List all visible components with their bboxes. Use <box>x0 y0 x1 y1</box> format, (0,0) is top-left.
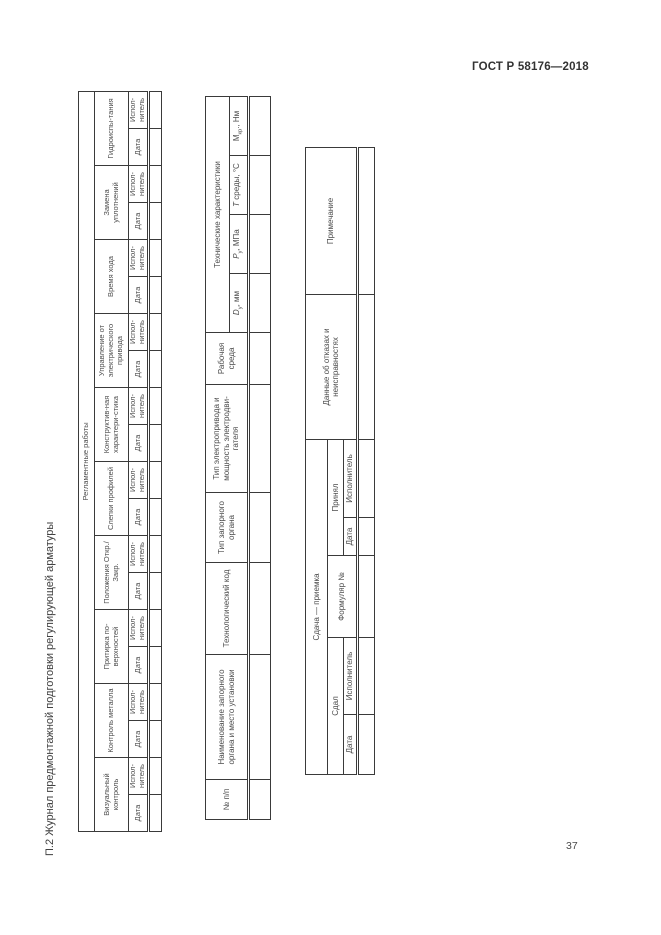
col-header-torque: Мкр., Нм <box>230 97 249 156</box>
executor-header: Испол-нитель <box>129 240 149 277</box>
page-number: 37 <box>566 840 578 852</box>
col-header-dn: Dу, мм <box>230 274 249 333</box>
executor-header: Испол-нитель <box>129 314 149 351</box>
empty-cell <box>149 277 162 314</box>
group-handed-over: Сдал <box>328 638 344 775</box>
table-row <box>249 97 271 820</box>
empty-cell <box>249 274 271 333</box>
date-header: Дата <box>129 721 149 758</box>
table-row <box>149 91 162 831</box>
regulated-works-table: Регламентные работы Визуальный контроль … <box>78 91 162 832</box>
empty-cell <box>149 203 162 240</box>
empty-cell <box>149 388 162 425</box>
empty-cell <box>249 215 271 274</box>
col-header-valve-name: Наименование запорного органа и место ус… <box>206 655 249 780</box>
date-header: Дата <box>129 425 149 462</box>
col-header-pn: Pу, МПа <box>230 215 249 274</box>
empty-cell <box>149 166 162 203</box>
date-header: Дата <box>129 277 149 314</box>
executor-header: Испол-нитель <box>129 166 149 203</box>
empty-cell <box>249 563 271 655</box>
empty-cell <box>149 684 162 721</box>
group-open-close-positions: Положения Откр./Закр. <box>95 536 129 610</box>
empty-cell <box>249 780 271 820</box>
empty-cell <box>149 499 162 536</box>
table-title-acceptance: Сдача — приемка <box>306 439 328 774</box>
date-header: Дата <box>129 573 149 610</box>
table-title-regulated-works: Регламентные работы <box>79 91 95 831</box>
empty-cell <box>149 721 162 758</box>
col-header-valve-type: Тип запорного органа <box>206 493 249 563</box>
executor-header: Испол-нитель <box>129 536 149 573</box>
empty-cell <box>149 91 162 128</box>
group-surface-lapping: Притирка по-верхностей <box>95 610 129 684</box>
date-header: Дата <box>129 351 149 388</box>
empty-cell <box>149 536 162 573</box>
group-profile-casts: Слепки профилей <box>95 462 129 536</box>
group-electric-drive-control: Управление от электрического привода <box>95 314 129 388</box>
empty-cell <box>149 758 162 795</box>
empty-cell <box>149 573 162 610</box>
empty-cell <box>149 610 162 647</box>
equipment-table-wrap: № п/п Наименование запорного органа и ме… <box>205 97 276 821</box>
col-header-working-medium: Рабочая среда <box>206 333 249 385</box>
table-row <box>358 147 375 774</box>
group-hydro-tests: Гидроиспы-тания <box>95 91 129 165</box>
col-header-tech-code: Технологический код <box>206 563 249 655</box>
date-header: Дата <box>129 795 149 832</box>
empty-cell <box>249 655 271 780</box>
empty-cell <box>149 425 162 462</box>
empty-cell <box>149 795 162 832</box>
regulated-works-table-wrap: Регламентные работы Визуальный контроль … <box>78 92 168 835</box>
empty-cell <box>149 351 162 388</box>
col-header-medium-temp: Т среды, °С <box>230 156 249 215</box>
group-design-characteristic: Конструктив-ная характери-стика <box>95 388 129 462</box>
empty-cell <box>358 715 375 775</box>
appendix-title: П.2 Журнал предмонтажной подготовки регу… <box>44 500 56 856</box>
document-page: ГОСТ Р 58176—2018 П.2 Журнал предмонтажн… <box>0 0 661 935</box>
empty-cell <box>149 129 162 166</box>
executor-header: Исполнитель <box>344 439 358 517</box>
empty-cell <box>358 518 375 556</box>
empty-cell <box>149 462 162 499</box>
col-header-number: № п/п <box>206 780 249 820</box>
group-visual-control: Визуальный контроль <box>95 758 129 832</box>
date-header: Дата <box>344 715 358 775</box>
group-travel-time: Время хода <box>95 240 129 314</box>
empty-cell <box>249 97 271 156</box>
col-header-notes: Примечание <box>306 147 358 294</box>
equipment-table: № п/п Наименование запорного органа и ме… <box>205 96 271 820</box>
empty-cell <box>249 385 271 493</box>
date-header: Дата <box>344 518 358 556</box>
group-metal-control: Контроль металла <box>95 684 129 758</box>
date-header: Дата <box>129 647 149 684</box>
empty-cell <box>358 556 375 638</box>
executor-header: Испол-нитель <box>129 610 149 647</box>
executor-header: Испол-нитель <box>129 684 149 721</box>
executor-header: Испол-нитель <box>129 758 149 795</box>
empty-cell <box>249 493 271 563</box>
executor-header: Исполнитель <box>344 638 358 715</box>
acceptance-table-wrap: Сдача — приемка Данные об отказах и неис… <box>305 148 380 776</box>
col-header-drive-type: Тип электропривода и мощность электродви… <box>206 385 249 493</box>
date-header: Дата <box>129 203 149 240</box>
empty-cell <box>149 647 162 684</box>
empty-cell <box>249 156 271 215</box>
date-header: Дата <box>129 499 149 536</box>
col-header-form-number: Формуляр № <box>328 556 358 638</box>
executor-header: Испол-нитель <box>129 91 149 128</box>
empty-cell <box>358 147 375 294</box>
standard-number: ГОСТ Р 58176—2018 <box>472 61 584 73</box>
empty-cell <box>249 333 271 385</box>
empty-cell <box>358 638 375 715</box>
empty-cell <box>358 439 375 517</box>
group-seal-replacement: Замена уплотнений <box>95 166 129 240</box>
date-header: Дата <box>129 129 149 166</box>
empty-cell <box>149 240 162 277</box>
executor-header: Испол-нитель <box>129 462 149 499</box>
group-received: Принял <box>328 439 344 555</box>
group-technical-characteristics: Технические характеристики <box>206 97 230 333</box>
empty-cell <box>149 314 162 351</box>
empty-cell <box>358 294 375 439</box>
col-header-failures: Данные об отказах и неисправностях <box>306 294 358 439</box>
executor-header: Испол-нитель <box>129 388 149 425</box>
acceptance-table: Сдача — приемка Данные об отказах и неис… <box>305 147 375 775</box>
